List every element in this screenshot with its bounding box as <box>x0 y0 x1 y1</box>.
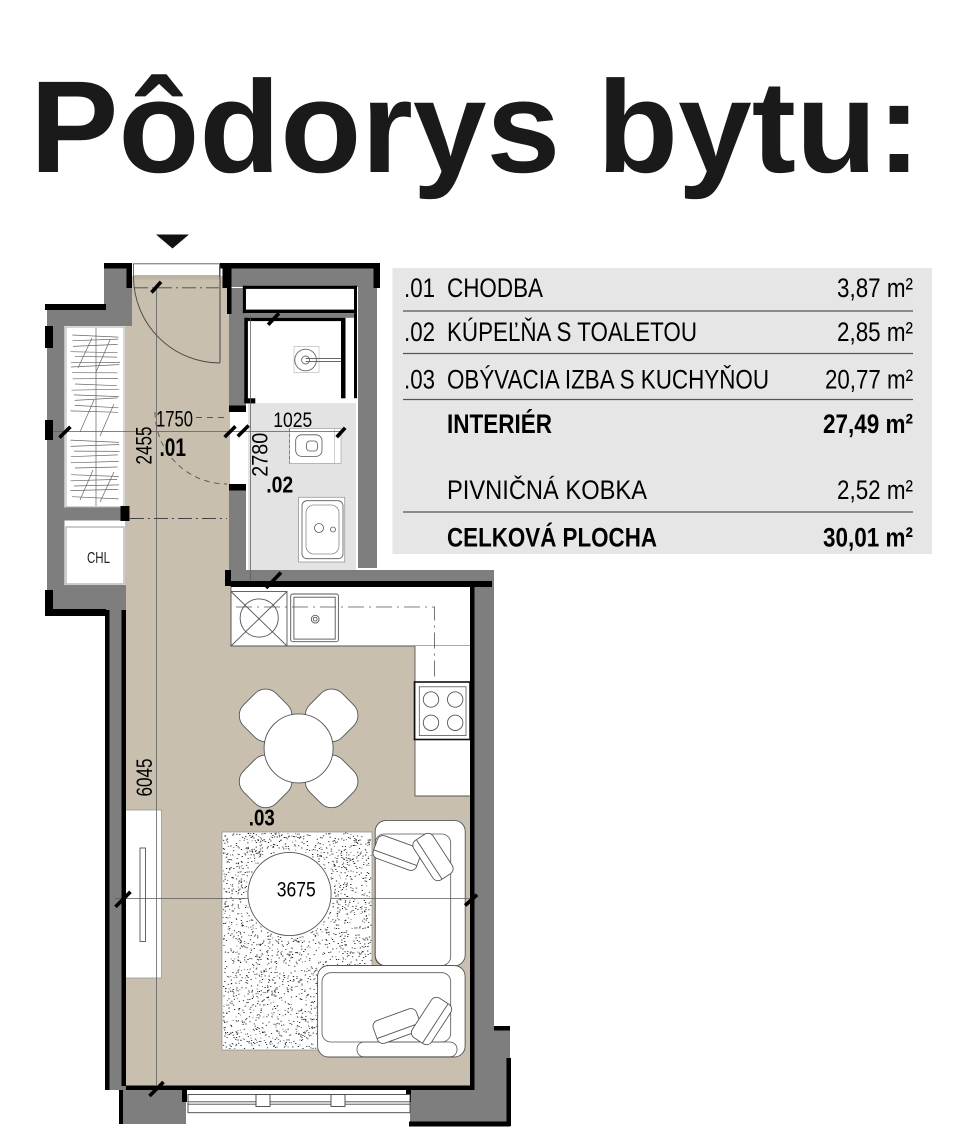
svg-text:CELKOVÁ PLOCHA: CELKOVÁ PLOCHA <box>447 522 657 553</box>
svg-text:3675: 3675 <box>277 879 316 902</box>
svg-text:Pôdorys bytu:: Pôdorys bytu: <box>30 53 921 200</box>
svg-text:2455: 2455 <box>132 427 157 465</box>
svg-text:.02: .02 <box>404 317 435 347</box>
svg-text:2,85 m²: 2,85 m² <box>837 317 913 347</box>
svg-text:INTERIÉR: INTERIÉR <box>447 408 552 439</box>
svg-text:.03: .03 <box>249 805 275 831</box>
svg-text:2780: 2780 <box>248 433 273 477</box>
svg-text:.03: .03 <box>404 365 435 395</box>
svg-text:20,77 m²: 20,77 m² <box>825 365 913 395</box>
svg-text:CHL: CHL <box>87 550 110 567</box>
svg-text:1750: 1750 <box>156 406 193 431</box>
svg-text:.01: .01 <box>404 273 435 303</box>
svg-text:OBÝVACIA IZBA S KUCHYŇOU: OBÝVACIA IZBA S KUCHYŇOU <box>447 364 769 395</box>
svg-text:CHODBA: CHODBA <box>447 273 543 303</box>
svg-text:3,87 m²: 3,87 m² <box>837 273 913 303</box>
svg-text:27,49 m²: 27,49 m² <box>823 409 913 439</box>
svg-text:.01: .01 <box>160 434 187 462</box>
svg-text:KÚPEĽŇA S TOALETOU: KÚPEĽŇA S TOALETOU <box>447 316 697 347</box>
svg-text:PIVNIČNÁ KOBKA: PIVNIČNÁ KOBKA <box>447 474 647 505</box>
svg-text:2,52 m²: 2,52 m² <box>837 475 913 505</box>
svg-text:6045: 6045 <box>132 759 157 797</box>
svg-text:30,01 m²: 30,01 m² <box>823 523 913 553</box>
svg-text:1025: 1025 <box>273 409 312 432</box>
